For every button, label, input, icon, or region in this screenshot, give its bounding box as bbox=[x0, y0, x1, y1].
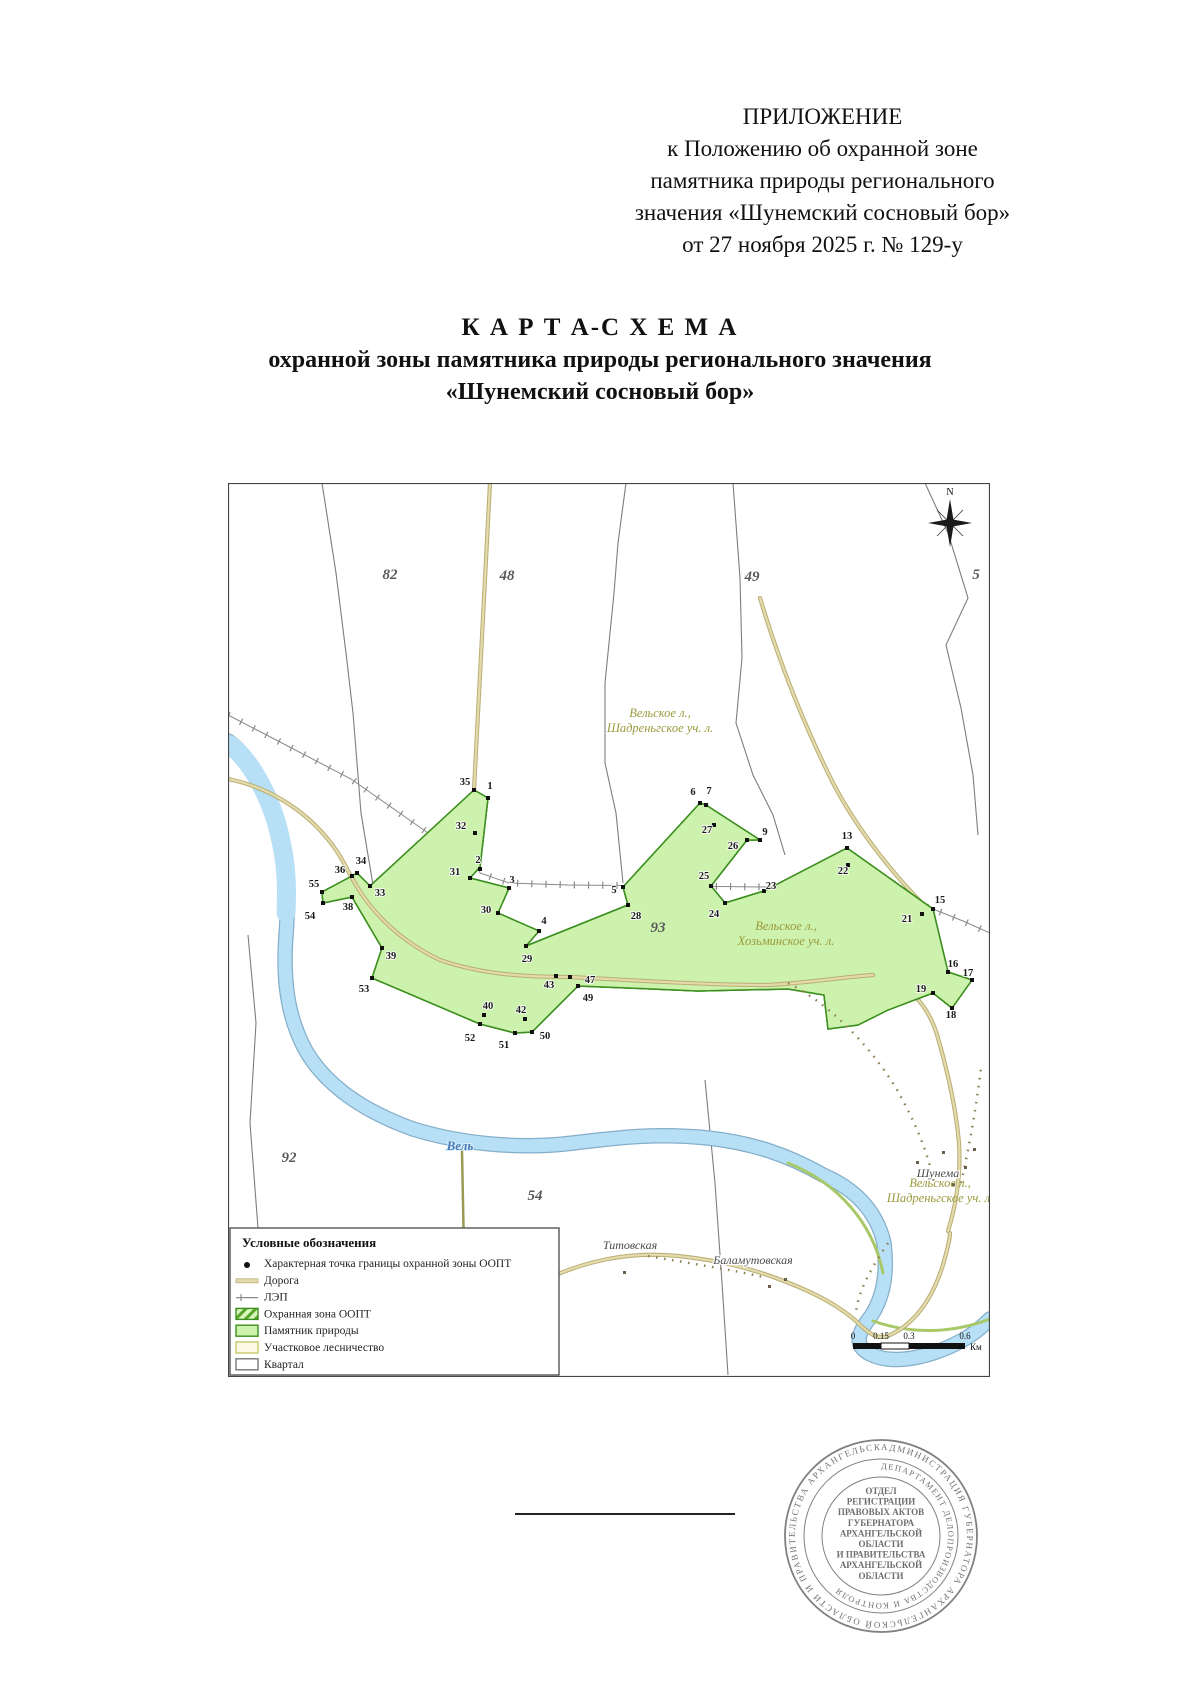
legend-title: Условные обозначения bbox=[242, 1235, 376, 1250]
boundary-point-dot bbox=[507, 886, 511, 890]
legend-item-label: Квартал bbox=[264, 1359, 304, 1371]
boundary-point-dot bbox=[931, 907, 935, 911]
map-title-block: К А Р Т А-С Х Е М А охранной зоны памятн… bbox=[0, 312, 1200, 408]
boundary-point-dot bbox=[368, 884, 372, 888]
boundary-point-label: 13 bbox=[842, 831, 853, 842]
boundary-point-dot bbox=[568, 975, 572, 979]
legend-point-icon bbox=[244, 1262, 250, 1268]
boundary-point-label: 19 bbox=[916, 984, 927, 995]
boundary-point-dot bbox=[486, 796, 490, 800]
boundary-point-label: 39 bbox=[386, 951, 397, 962]
boundary-point-dot bbox=[320, 890, 324, 894]
legend-item-quarter: Квартал bbox=[236, 1359, 304, 1371]
header-line: ПРИЛОЖЕНИЕ bbox=[600, 101, 1045, 133]
quarter-number: 54 bbox=[528, 1188, 544, 1204]
boundary-point-dot bbox=[758, 838, 762, 842]
signature-line bbox=[515, 1513, 735, 1515]
boundary-point-label: 26 bbox=[728, 841, 739, 852]
stamp-center-line: ПРАВОВЫХ АКТОВ bbox=[838, 1507, 924, 1517]
quarter-number: 93 bbox=[651, 920, 667, 936]
map-subtitle2: «Шунемский сосновый бор» bbox=[0, 376, 1200, 408]
boundary-point-dot bbox=[698, 801, 702, 805]
boundary-point-dot bbox=[350, 895, 354, 899]
river-label: Вель bbox=[446, 1138, 474, 1153]
legend-item-label: Характерная точка границы охранной зоны … bbox=[264, 1258, 511, 1270]
boundary-point-label: 52 bbox=[465, 1033, 476, 1044]
boundary-point-dot bbox=[478, 867, 482, 871]
header-block: ПРИЛОЖЕНИЕ к Положению об охранной зоне … bbox=[600, 101, 1045, 261]
settlement-label: Титовская bbox=[603, 1238, 658, 1252]
boundary-point-label: 4 bbox=[541, 916, 547, 927]
scale-tick-label: 0.6 bbox=[959, 1331, 971, 1341]
scale-unit: Км bbox=[970, 1342, 982, 1352]
legend: Условные обозначения Характерная точка г… bbox=[230, 1228, 559, 1375]
boundary-point-label: 1 bbox=[487, 781, 492, 792]
boundary-point-dot bbox=[704, 803, 708, 807]
document-page: ПРИЛОЖЕНИЕ к Положению об охранной зоне … bbox=[0, 0, 1200, 1697]
boundary-point-label: 31 bbox=[450, 867, 461, 878]
boundary-point-label: 40 bbox=[483, 1001, 494, 1012]
scale-tick-label: 0.15 bbox=[873, 1331, 889, 1341]
boundary-point-dot bbox=[576, 984, 580, 988]
boundary-point-label: 6 bbox=[690, 787, 695, 798]
boundary-point-label: 22 bbox=[838, 866, 849, 877]
boundary-point-dot bbox=[482, 1013, 486, 1017]
boundary-point-label: 33 bbox=[375, 888, 386, 899]
boundary-point-label: 34 bbox=[356, 856, 367, 867]
boundary-point-dot bbox=[920, 912, 924, 916]
boundary-point-label: 27 bbox=[702, 825, 713, 836]
boundary-point-label: 7 bbox=[706, 786, 711, 797]
boundary-point-dot bbox=[524, 944, 528, 948]
boundary-point-label: 43 bbox=[544, 980, 555, 991]
boundary-point-label: 24 bbox=[709, 909, 720, 920]
header-line: значения «Шунемский сосновый бор» bbox=[600, 197, 1045, 229]
boundary-point-label: 38 bbox=[343, 902, 354, 913]
legend-item-forestry: Участковое лесничество bbox=[236, 1342, 384, 1354]
header-line: от 27 ноября 2025 г. № 129-у bbox=[600, 229, 1045, 261]
quarter-number: 48 bbox=[499, 568, 516, 584]
boundary-point-dot bbox=[355, 871, 359, 875]
quarter-number: 82 bbox=[383, 567, 399, 583]
legend-item-label: Дорога bbox=[264, 1275, 299, 1287]
boundary-point-dot bbox=[745, 838, 749, 842]
map-subtitle: охранной зоны памятника природы регионал… bbox=[0, 344, 1200, 376]
boundary-point-dot bbox=[468, 876, 472, 880]
boundary-point-dot bbox=[931, 991, 935, 995]
boundary-point-label: 16 bbox=[948, 959, 959, 970]
boundary-point-dot bbox=[380, 946, 384, 950]
boundary-point-label: 3 bbox=[509, 875, 514, 886]
stamp-svg: АДМИНИСТРАЦИЯ ГУБЕРНАТОРА АРХАНГЕЛЬСКОЙ … bbox=[781, 1436, 981, 1636]
boundary-point-label: 5 bbox=[611, 885, 616, 896]
stamp-center-line: ГУБЕРНАТОРА bbox=[848, 1518, 915, 1528]
boundary-point-label: 23 bbox=[766, 881, 777, 892]
compass-north-label: N bbox=[946, 487, 953, 498]
boundary-point-dot bbox=[621, 885, 625, 889]
boundary-point-dot bbox=[845, 846, 849, 850]
map-frame: 88248495939254 Вельское л.,Шадреньгское … bbox=[228, 483, 990, 1377]
boundary-point-dot bbox=[712, 823, 716, 827]
stamp-center-line: РЕГИСТРАЦИИ bbox=[847, 1497, 916, 1507]
boundary-point-dot bbox=[723, 901, 727, 905]
scale-tick-label: 0 bbox=[851, 1331, 856, 1341]
legend-item-point: Характерная точка границы охранной зоны … bbox=[244, 1258, 511, 1270]
boundary-point-dot bbox=[321, 901, 325, 905]
stamp-center-line: И ПРАВИТЕЛЬСТВА bbox=[837, 1550, 926, 1560]
scale-tick-label: 0.3 bbox=[903, 1331, 915, 1341]
boundary-point-label: 17 bbox=[963, 968, 974, 979]
boundary-point-dot bbox=[709, 884, 713, 888]
legend-item-label: Участковое лесничество bbox=[264, 1342, 384, 1354]
boundary-point-label: 32 bbox=[456, 821, 467, 832]
settlement-label: Баламутовская bbox=[712, 1253, 793, 1267]
stamp-center-line: ОБЛАСТИ bbox=[859, 1571, 904, 1581]
boundary-point-dot bbox=[350, 874, 354, 878]
boundary-point-dot bbox=[530, 1030, 534, 1034]
boundary-point-label: 36 bbox=[335, 865, 346, 876]
legend-item-buffer: Охранная зона ООПТ bbox=[236, 1308, 371, 1320]
boundary-point-dot bbox=[472, 788, 476, 792]
boundary-point-dot bbox=[946, 970, 950, 974]
boundary-point-label: 15 bbox=[935, 895, 946, 906]
boundary-point-dot bbox=[478, 1022, 482, 1026]
boundary-point-label: 25 bbox=[699, 871, 710, 882]
boundary-point-label: 28 bbox=[631, 911, 642, 922]
quarter-number: 49 bbox=[744, 569, 761, 585]
boundary-point-label: 49 bbox=[583, 993, 594, 1004]
boundary-point-label: 50 bbox=[540, 1031, 551, 1042]
legend-road-icon bbox=[236, 1279, 258, 1283]
legend-forestry-icon bbox=[236, 1342, 258, 1353]
boundary-point-label: 42 bbox=[516, 1005, 527, 1016]
map-svg: 88248495939254 Вельское л.,Шадреньгское … bbox=[228, 483, 990, 1377]
map-title: К А Р Т А-С Х Е М А bbox=[0, 312, 1200, 344]
boundary-point-dot bbox=[537, 929, 541, 933]
legend-item-label: ЛЭП bbox=[264, 1292, 288, 1304]
legend-buffer-icon bbox=[236, 1308, 258, 1319]
stamp-center-line: АРХАНГЕЛЬСКОЙ bbox=[840, 1560, 922, 1570]
boundary-point-label: 53 bbox=[359, 984, 370, 995]
boundary-point-label: 21 bbox=[902, 914, 913, 925]
boundary-point-label: 35 bbox=[460, 777, 471, 788]
boundary-point-label: 54 bbox=[305, 911, 316, 922]
legend-item-monument: Памятник природы bbox=[236, 1325, 359, 1337]
boundary-point-dot bbox=[496, 911, 500, 915]
boundary-point-dot bbox=[523, 1017, 527, 1021]
legend-item-label: Памятник природы bbox=[264, 1325, 359, 1337]
boundary-point-dot bbox=[370, 976, 374, 980]
stamp-center-line: АРХАНГЕЛЬСКОЙ bbox=[840, 1528, 922, 1538]
boundary-point-dot bbox=[626, 903, 630, 907]
quarter-number: 92 bbox=[282, 1150, 298, 1166]
boundary-point-label: 18 bbox=[946, 1010, 957, 1021]
boundary-point-dot bbox=[473, 831, 477, 835]
boundary-point-label: 51 bbox=[499, 1040, 510, 1051]
boundary-point-label: 47 bbox=[585, 975, 596, 986]
boundary-point-label: 29 bbox=[522, 954, 533, 965]
legend-quarter-icon bbox=[236, 1359, 258, 1370]
settlement-label: Шунема bbox=[916, 1166, 959, 1180]
stamp-center-line: ОТДЕЛ bbox=[865, 1486, 897, 1496]
header-line: памятника природы регионального bbox=[600, 165, 1045, 197]
stamp-center-line: ОБЛАСТИ bbox=[859, 1539, 904, 1549]
boundary-point-label: 2 bbox=[475, 855, 480, 866]
boundary-point-label: 55 bbox=[309, 879, 320, 890]
boundary-point-dot bbox=[513, 1031, 517, 1035]
legend-item-label: Охранная зона ООПТ bbox=[264, 1308, 371, 1320]
registration-stamp: АДМИНИСТРАЦИЯ ГУБЕРНАТОРА АРХАНГЕЛЬСКОЙ … bbox=[781, 1436, 981, 1636]
boundary-point-label: 30 bbox=[481, 905, 492, 916]
boundary-point-dot bbox=[554, 974, 558, 978]
boundary-point-label: 9 bbox=[762, 827, 767, 838]
legend-monument-icon bbox=[236, 1325, 258, 1336]
header-line: к Положению об охранной зоне bbox=[600, 133, 1045, 165]
quarter-number: 5 bbox=[972, 567, 980, 583]
